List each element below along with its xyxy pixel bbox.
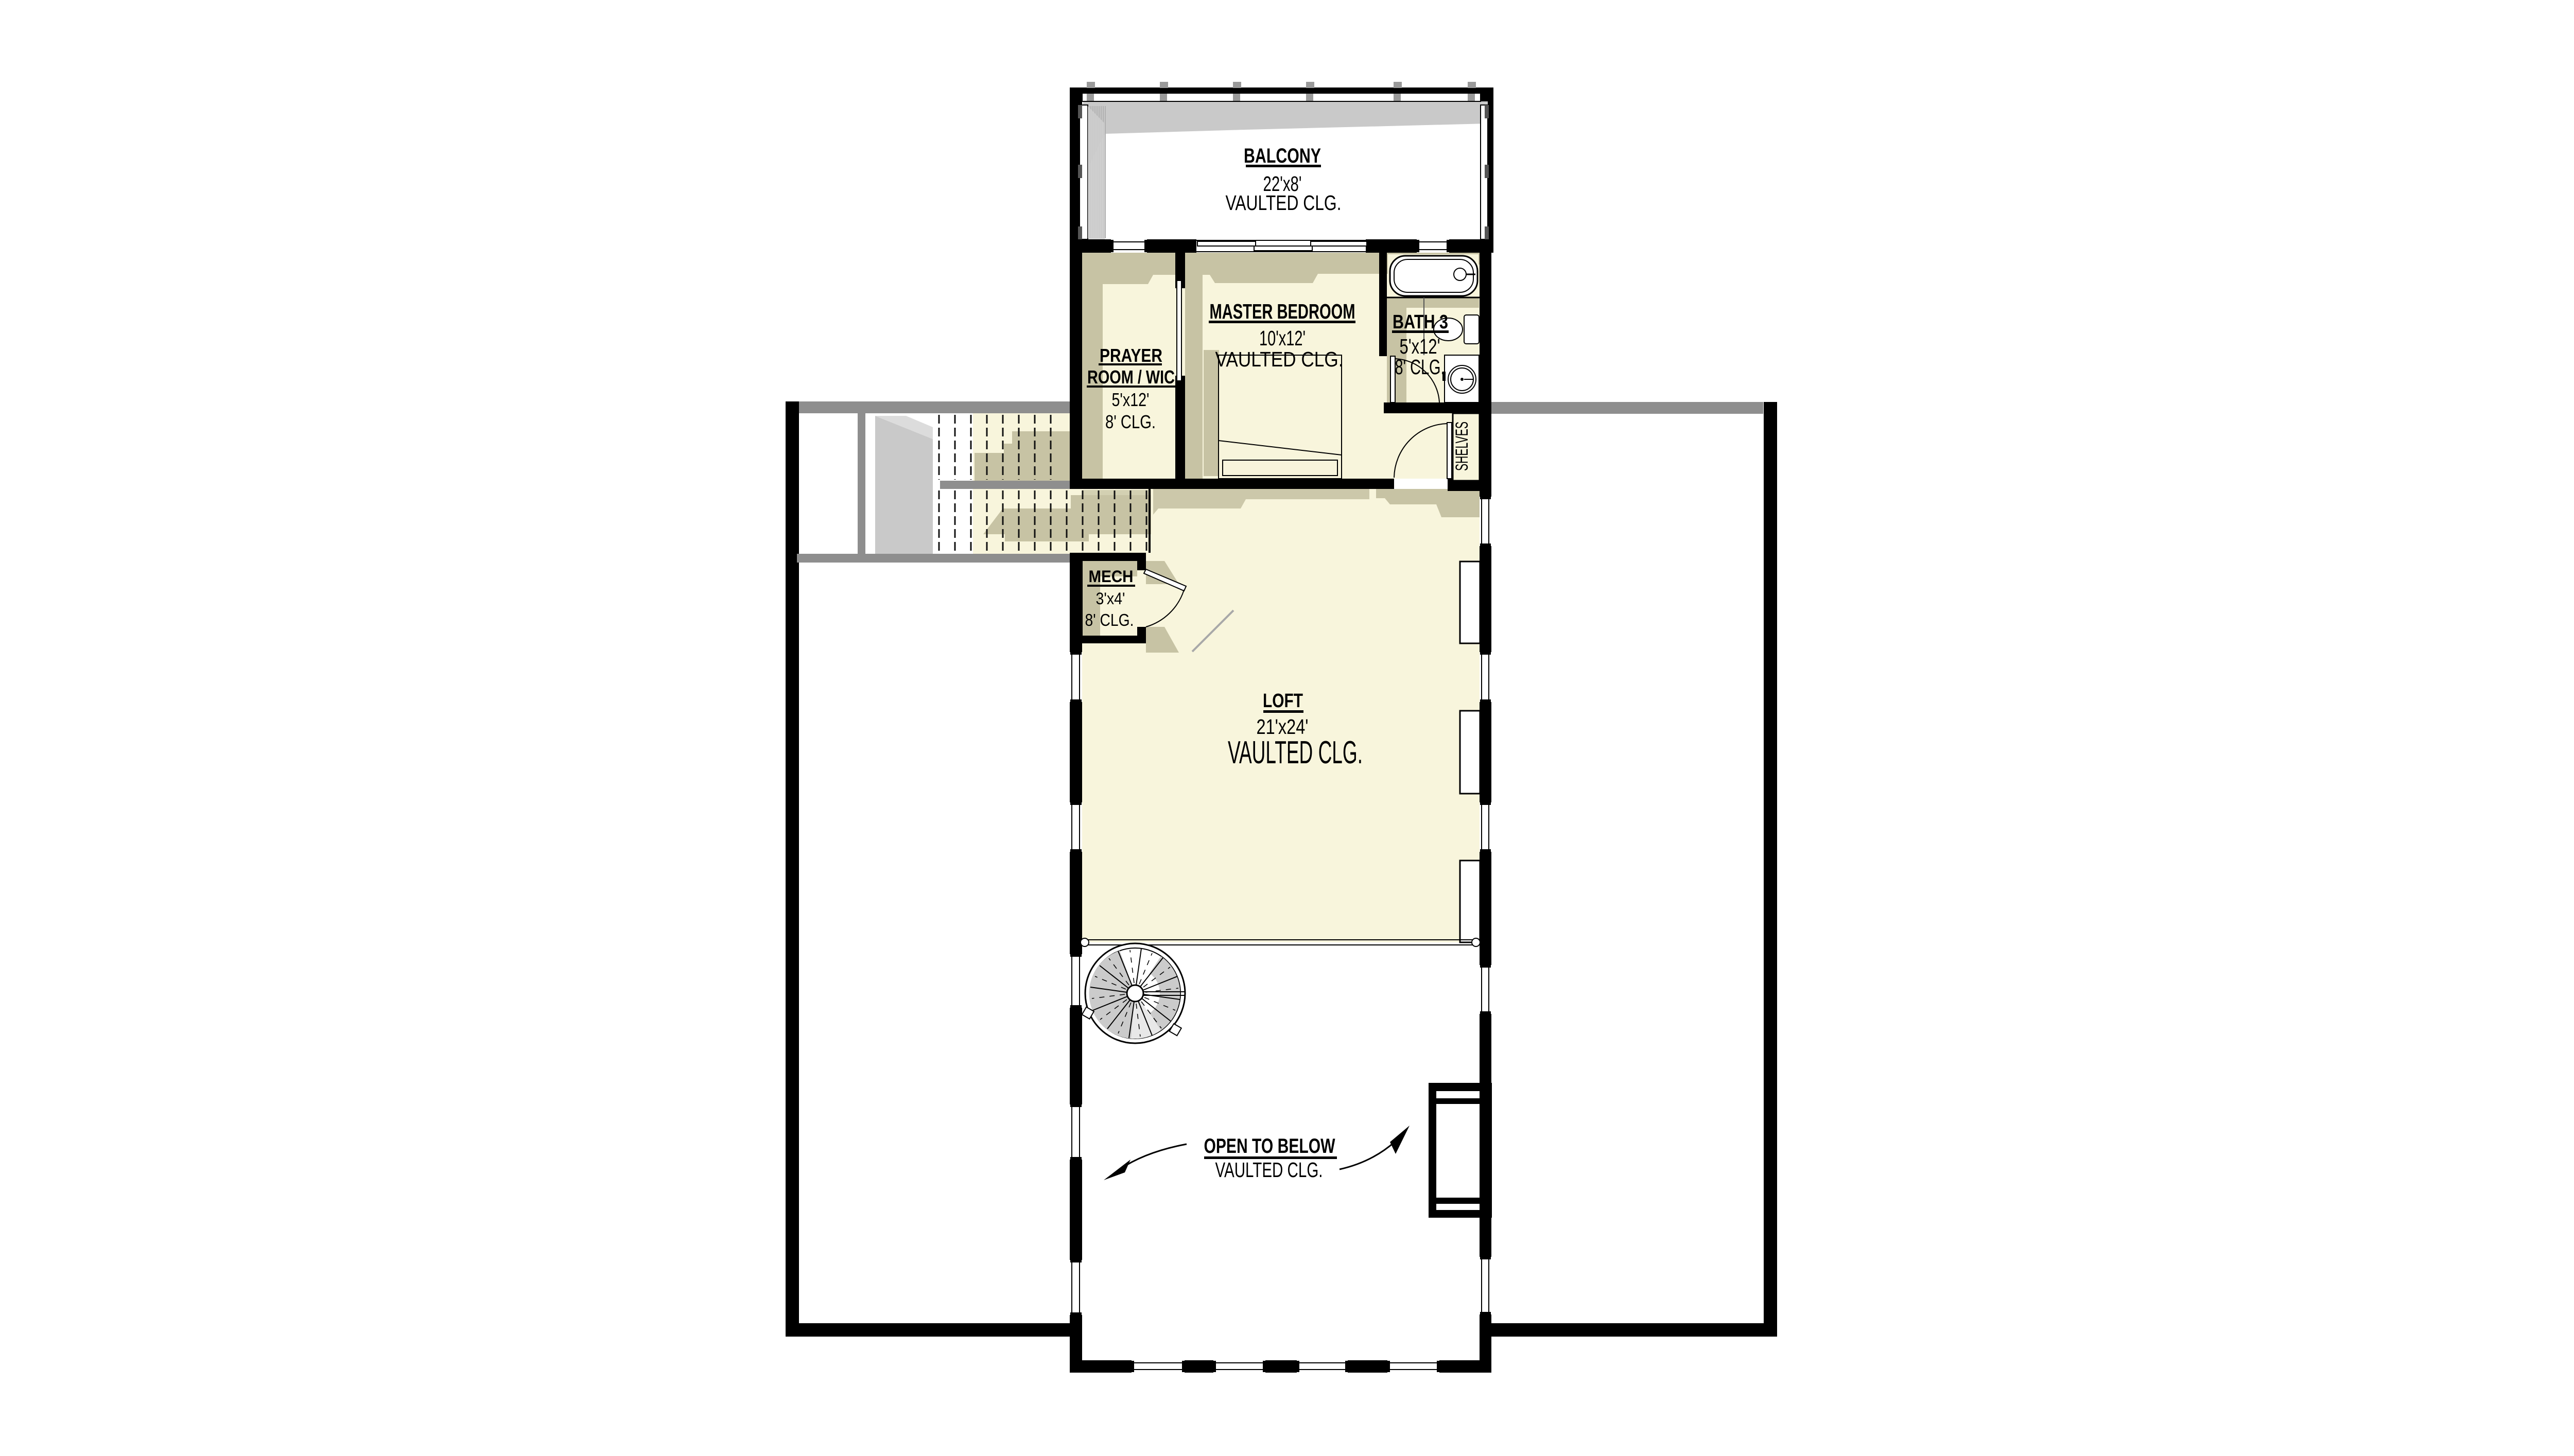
svg-text:BALCONY: BALCONY — [1244, 145, 1321, 167]
svg-text:ROOM / WIC: ROOM / WIC — [1087, 366, 1175, 388]
svg-text:8' CLG.: 8' CLG. — [1105, 411, 1156, 432]
svg-text:MECH: MECH — [1089, 567, 1134, 586]
svg-text:OPEN TO BELOW: OPEN TO BELOW — [1204, 1135, 1335, 1157]
svg-text:PRAYER: PRAYER — [1100, 345, 1162, 366]
svg-text:VAULTED CLG.: VAULTED CLG. — [1226, 191, 1342, 215]
svg-text:VAULTED CLG.: VAULTED CLG. — [1228, 735, 1363, 770]
svg-text:8' CLG.: 8' CLG. — [1395, 355, 1445, 379]
svg-text:10'x12': 10'x12' — [1259, 326, 1306, 350]
svg-text:SHELVES: SHELVES — [1452, 422, 1472, 471]
svg-text:3'x4': 3'x4' — [1096, 589, 1125, 608]
svg-text:MASTER BEDROOM: MASTER BEDROOM — [1210, 300, 1355, 323]
svg-text:5'x12': 5'x12' — [1112, 389, 1150, 410]
svg-text:BATH 3: BATH 3 — [1393, 311, 1448, 333]
svg-text:LOFT: LOFT — [1263, 690, 1303, 712]
svg-text:VAULTED CLG.: VAULTED CLG. — [1215, 347, 1344, 371]
svg-text:8' CLG.: 8' CLG. — [1085, 610, 1134, 629]
svg-text:VAULTED CLG.: VAULTED CLG. — [1215, 1158, 1323, 1182]
